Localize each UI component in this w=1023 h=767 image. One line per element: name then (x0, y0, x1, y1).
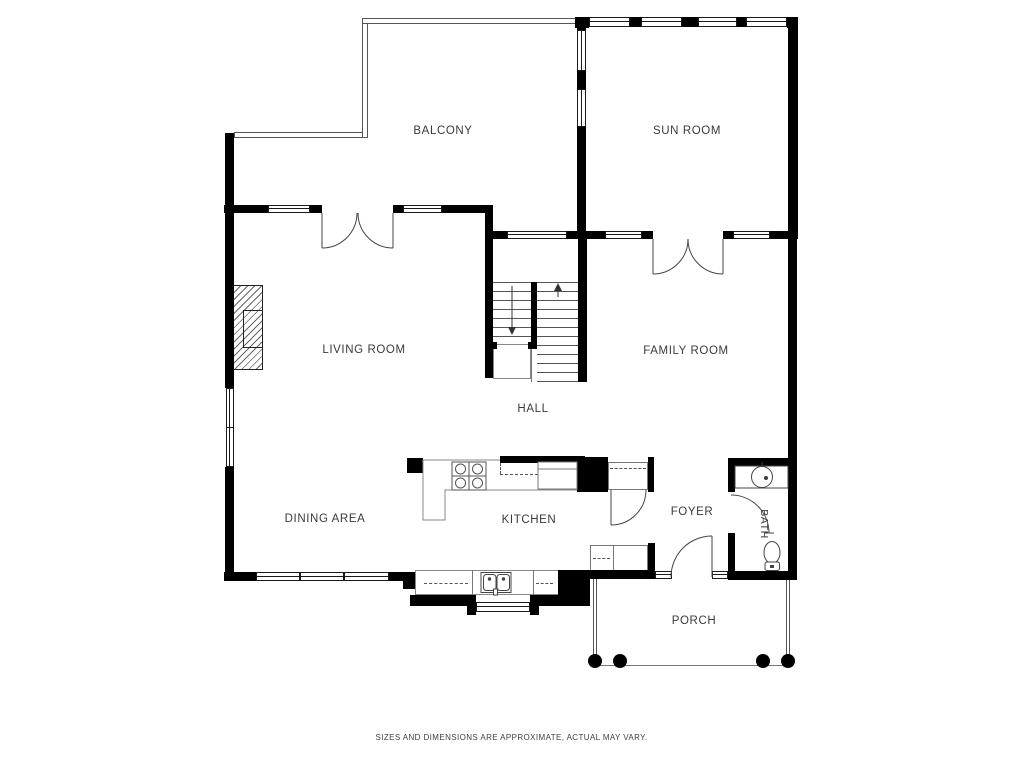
wall-segment (225, 133, 234, 388)
stairs-landing (493, 344, 531, 379)
wall-segment (467, 595, 476, 615)
window (712, 571, 728, 579)
closet-shelf-dashed (610, 468, 646, 469)
room-label-porch: PORCH (672, 615, 717, 627)
wall-segment (224, 572, 256, 581)
disclaimer-text: SIZES AND DIMENSIONS ARE APPROXIMATE, AC… (0, 733, 1023, 742)
wall-segment (728, 571, 797, 580)
porch-column (588, 654, 602, 668)
wall-segment (310, 205, 322, 213)
refrigerator (538, 462, 577, 489)
window (733, 231, 770, 239)
wall-segment (224, 205, 268, 213)
upper-cabinet-dashed (536, 583, 553, 584)
room-label-dining-area: DINING AREA (285, 513, 366, 525)
room-label-sun-room: SUN ROOM (653, 125, 721, 137)
wall-segment (410, 595, 472, 606)
wall-segment (528, 342, 537, 349)
bay-window (476, 602, 530, 612)
upper-cabinet-dashed (424, 583, 468, 584)
upper-cabinet-dashed (500, 474, 538, 475)
closet-door (611, 490, 646, 525)
porch-column (781, 654, 795, 668)
room-label-hall: HALL (517, 403, 548, 415)
window (605, 231, 642, 239)
wall-segment (578, 231, 587, 382)
window (256, 572, 300, 581)
window (655, 571, 672, 579)
porch-column (613, 654, 627, 668)
wall-segment (403, 572, 415, 589)
window (698, 17, 737, 27)
window (226, 427, 234, 467)
wall-segment (648, 543, 655, 572)
window (641, 17, 682, 27)
window (403, 205, 442, 213)
room-label-kitchen: KITCHEN (502, 514, 557, 526)
balcony-railing (362, 19, 368, 138)
wall-segment (588, 570, 655, 579)
balcony-railing (362, 18, 577, 24)
window (589, 17, 630, 27)
room-label-family-room: FAMILY ROOM (643, 345, 728, 357)
fixtures-overlay (0, 0, 1023, 767)
wall-segment (393, 205, 403, 213)
balcony-railing (234, 132, 366, 138)
upper-cabinet-dashed (500, 463, 501, 474)
family-room-double-door (653, 239, 723, 274)
room-label-foyer: FOYER (671, 506, 714, 518)
wall-segment (488, 342, 497, 349)
counter-divider (472, 570, 473, 595)
toilet (764, 542, 780, 571)
stove (452, 462, 486, 490)
window (268, 205, 310, 213)
wall-segment (531, 282, 537, 343)
stairs-down-flight (493, 282, 531, 344)
front-door (671, 536, 712, 577)
wall-segment (728, 458, 797, 466)
stairs-up-flight (537, 282, 579, 383)
wall-segment (728, 533, 735, 578)
room-label-balcony: BALCONY (413, 125, 472, 137)
wall-segment (737, 17, 746, 27)
wall-segment (770, 231, 798, 239)
room-label-living-room: LIVING ROOM (322, 344, 405, 356)
wall-segment (577, 17, 586, 30)
wall-segment (682, 17, 698, 27)
living-room-double-door (322, 213, 393, 248)
wall-segment (577, 127, 586, 239)
wall-segment (485, 205, 493, 378)
porch-column (756, 654, 770, 668)
window (300, 572, 344, 581)
window (507, 231, 567, 239)
wall-segment (723, 231, 733, 239)
fireplace-firebox (243, 310, 263, 348)
counter-divider (533, 570, 534, 595)
wall-segment (788, 17, 798, 239)
window (344, 572, 389, 581)
wall-segment (577, 457, 608, 492)
wall-segment (642, 231, 653, 239)
porch-rail-left (593, 578, 597, 658)
pantry-closet (608, 462, 648, 490)
porch-rail-right (786, 578, 790, 658)
wall-segment (407, 458, 423, 473)
wall-segment (630, 17, 641, 27)
wall-segment (648, 457, 654, 492)
wall-segment (788, 239, 797, 578)
wall-segment (225, 467, 234, 580)
floor-plan: BALCONY SUN ROOM LIVING ROOM FAMILY ROOM… (0, 0, 1023, 767)
cabinet-divider (613, 545, 614, 572)
window (577, 30, 586, 71)
window (226, 388, 234, 428)
cabinet-dashed (593, 558, 610, 559)
window (577, 89, 586, 127)
window (746, 17, 787, 27)
room-label-bath: BATH (758, 509, 770, 539)
wall-segment (558, 570, 590, 606)
wall-segment (577, 70, 586, 89)
wall-segment (500, 456, 585, 463)
